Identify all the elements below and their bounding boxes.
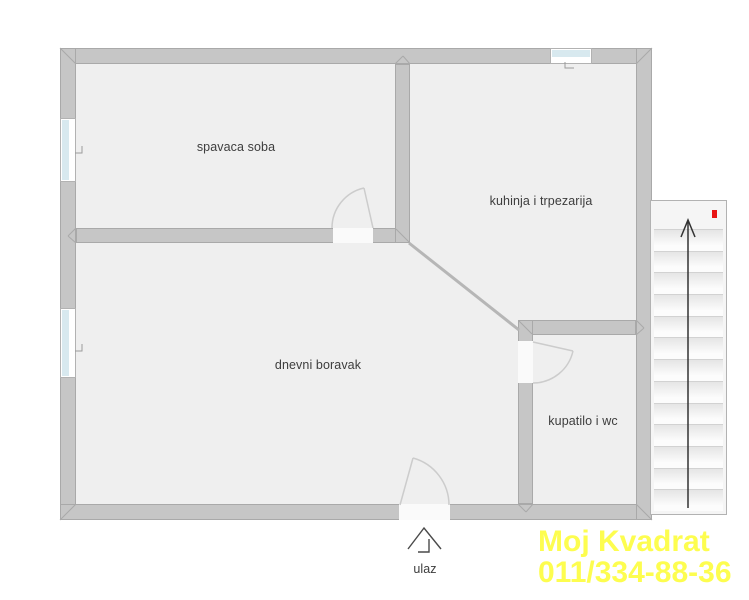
floor-plan: spavaca soba kuhinja i trpezarija dnevni… (0, 0, 749, 600)
stairs-step (654, 272, 723, 294)
stairs-step (654, 424, 723, 446)
wall-bedroom-east (395, 64, 410, 243)
stairs-step (654, 316, 723, 338)
stairs-start-marker (712, 210, 717, 218)
stairs-step (654, 489, 723, 511)
window-glass (552, 50, 590, 57)
window-living (60, 308, 76, 378)
window-kitchen (550, 48, 592, 64)
stairs-step (654, 359, 723, 381)
apartment-floor (60, 48, 652, 520)
wall-exterior-south (60, 504, 652, 520)
stairs-step (654, 251, 723, 273)
stairs-step (654, 229, 723, 251)
room-label-bathroom: kupatilo i wc (548, 414, 617, 428)
door-opening-entrance (399, 504, 450, 520)
door-opening-bedroom (333, 228, 373, 243)
window-glass (62, 310, 69, 376)
watermark-brand: Moj Kvadrat (538, 526, 732, 557)
door-opening-bathroom (518, 341, 533, 383)
room-label-bedroom: spavaca soba (197, 140, 275, 154)
stairs-step (654, 403, 723, 425)
room-label-kitchen: kuhinja i trpezarija (490, 194, 593, 208)
room-label-living: dnevni boravak (275, 358, 361, 372)
stairs-step (654, 446, 723, 468)
entrance-arrow-icon (408, 528, 441, 552)
wall-bathroom-north (518, 320, 636, 335)
entrance-label: ulaz (413, 562, 436, 576)
stairs-step (654, 468, 723, 490)
watermark-phone: 011/334-88-36 (538, 557, 732, 588)
window-glass (62, 120, 69, 180)
watermark: Moj Kvadrat 011/334-88-36 (538, 526, 732, 588)
stairs-step (654, 337, 723, 359)
window-bedroom (60, 118, 76, 182)
staircase (650, 200, 727, 515)
stairs-step (654, 294, 723, 316)
stairs-step (654, 381, 723, 403)
